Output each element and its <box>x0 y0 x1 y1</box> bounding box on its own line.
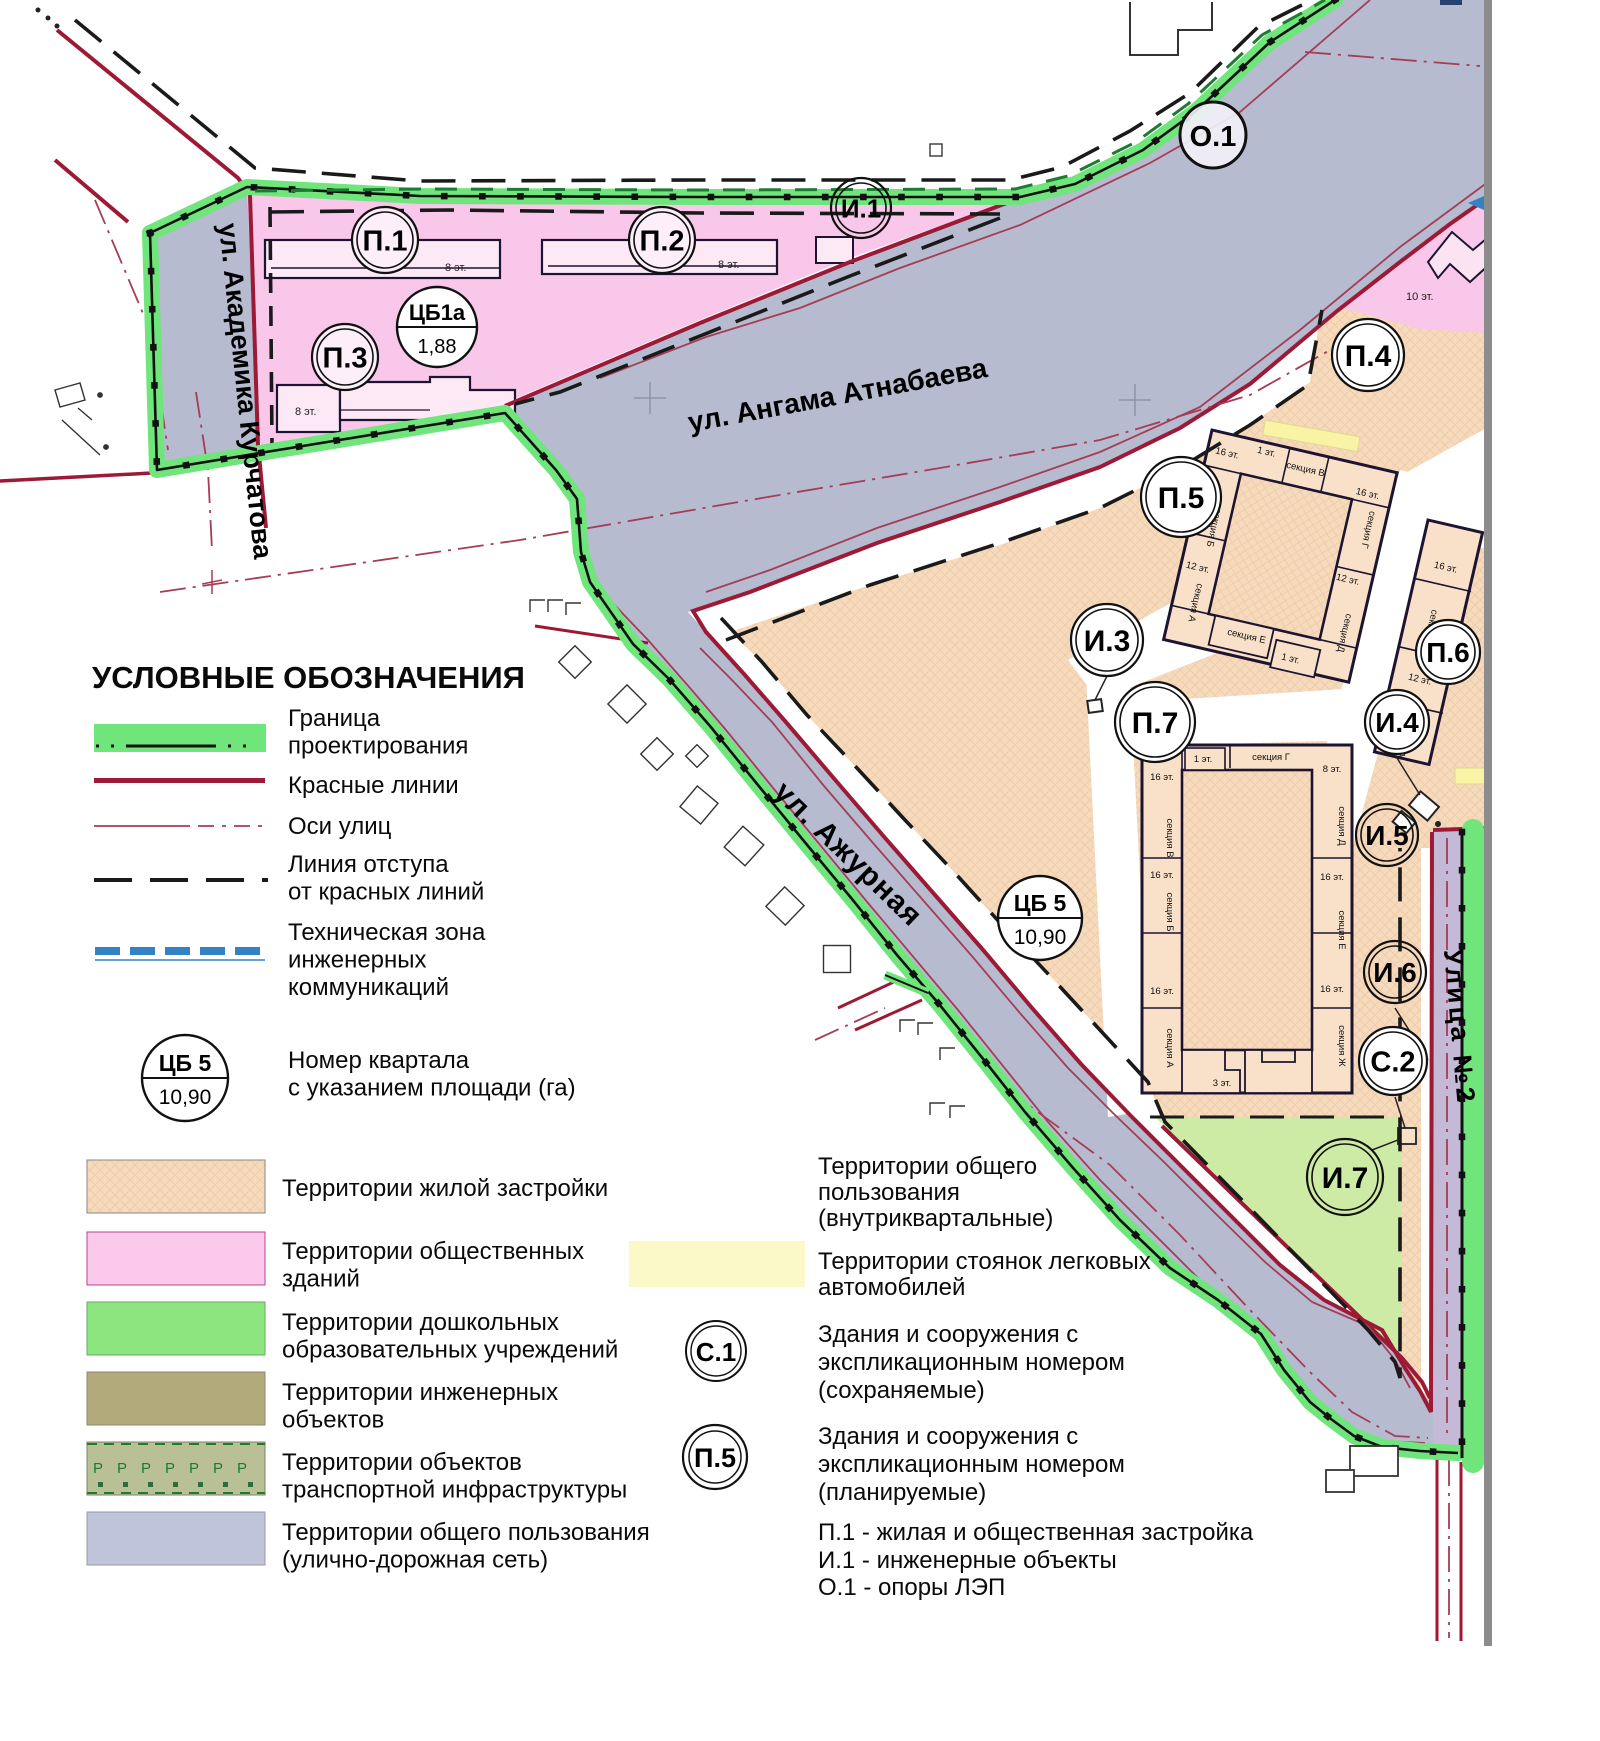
svg-text:И.7: И.7 <box>1322 1162 1369 1195</box>
svg-text:Территории инженерных: Территории инженерных <box>282 1379 558 1406</box>
svg-text:Здания и сооружения с: Здания и сооружения с <box>818 1423 1078 1450</box>
svg-text:инженерных: инженерных <box>288 947 427 974</box>
svg-text:О.1: О.1 <box>1190 121 1237 153</box>
svg-text:(улично-дорожная сеть): (улично-дорожная сеть) <box>282 1547 548 1574</box>
svg-text:С.1: С.1 <box>696 1337 736 1367</box>
svg-text:Территории объектов: Территории объектов <box>282 1449 522 1476</box>
svg-text:16 эт.: 16 эт. <box>1150 772 1174 783</box>
svg-text:зданий: зданий <box>282 1266 360 1293</box>
svg-text:Территории жилой застройки: Территории жилой застройки <box>282 1175 608 1202</box>
svg-text:16 эт.: 16 эт. <box>1150 986 1174 997</box>
svg-text:секция Г: секция Г <box>1252 752 1290 763</box>
svg-text:объектов: объектов <box>282 1407 384 1434</box>
svg-text:8 эт.: 8 эт. <box>295 406 316 418</box>
svg-text:транспортной инфраструктуры: транспортной инфраструктуры <box>282 1477 627 1504</box>
svg-text:3 эт.: 3 эт. <box>1213 1078 1232 1089</box>
svg-text:8 эт.: 8 эт. <box>445 262 466 274</box>
svg-text:УСЛОВНЫЕ ОБОЗНАЧЕНИЯ: УСЛОВНЫЕ ОБОЗНАЧЕНИЯ <box>92 660 525 695</box>
svg-text:П.6: П.6 <box>1426 637 1469 668</box>
svg-text:П.2: П.2 <box>639 225 684 257</box>
svg-text:С.2: С.2 <box>1370 1046 1415 1078</box>
svg-text:П.5: П.5 <box>1158 482 1205 515</box>
svg-text:1 эт.: 1 эт. <box>1194 754 1213 765</box>
svg-text:П.5: П.5 <box>694 1443 736 1473</box>
svg-text:П.1: П.1 <box>362 225 407 257</box>
svg-text:Техническая зона: Техническая зона <box>288 919 486 946</box>
svg-text:8 эт.: 8 эт. <box>1323 764 1342 775</box>
svg-text:экспликационным номером: экспликационным номером <box>818 1451 1125 1478</box>
svg-text:О.1 - опоры ЛЭП: О.1 - опоры ЛЭП <box>818 1574 1005 1601</box>
svg-text:ЦБ1а: ЦБ1а <box>409 300 466 325</box>
svg-text:Граница: Граница <box>288 705 381 732</box>
svg-text:1,88: 1,88 <box>418 336 457 358</box>
svg-text:16 эт.: 16 эт. <box>1320 872 1344 883</box>
svg-text:И.3: И.3 <box>1084 625 1131 658</box>
svg-text:И.1 - инженерные объекты: И.1 - инженерные объекты <box>818 1547 1117 1574</box>
svg-text:10 эт.: 10 эт. <box>1406 291 1434 303</box>
svg-text:Территории общего пользования: Территории общего пользования <box>282 1519 650 1546</box>
svg-text:секция Ж: секция Ж <box>1336 1025 1347 1067</box>
svg-text:коммуникаций: коммуникаций <box>288 974 449 1001</box>
svg-text:секция В: секция В <box>1164 818 1175 857</box>
svg-text:секция Б: секция Б <box>1164 893 1175 932</box>
svg-text:Линия отступа: Линия отступа <box>288 851 449 878</box>
svg-text:Территории дошкольных: Территории дошкольных <box>282 1309 559 1336</box>
svg-text:(внутриквартальные): (внутриквартальные) <box>818 1205 1053 1232</box>
svg-text:от красных линий: от красных линий <box>288 879 484 906</box>
svg-text:П.3: П.3 <box>322 342 367 374</box>
svg-text:Оси улиц: Оси улиц <box>288 813 392 840</box>
svg-text:И.1: И.1 <box>841 193 881 223</box>
svg-text:РРРРРРР: РРРРРРР <box>93 1460 261 1477</box>
svg-text:с указанием площади (га): с указанием площади (га) <box>288 1075 576 1102</box>
svg-text:секция А: секция А <box>1164 1028 1175 1068</box>
svg-text:Территории общественных: Территории общественных <box>282 1238 584 1265</box>
svg-text:Территории общего: Территории общего <box>818 1153 1037 1180</box>
svg-text:И.6: И.6 <box>1373 957 1416 988</box>
svg-text:10,90: 10,90 <box>1014 926 1067 949</box>
svg-text:секция Е: секция Е <box>1336 910 1347 949</box>
svg-text:16 эт.: 16 эт. <box>1150 870 1174 881</box>
svg-text:автомобилей: автомобилей <box>818 1274 965 1301</box>
svg-text:10,90: 10,90 <box>159 1086 212 1109</box>
svg-text:(планируемые): (планируемые) <box>818 1479 986 1506</box>
svg-text:проектирования: проектирования <box>288 733 468 760</box>
svg-text:8 эт.: 8 эт. <box>718 259 739 271</box>
svg-text:секция Д: секция Д <box>1336 806 1347 846</box>
svg-text:16 эт.: 16 эт. <box>1320 984 1344 995</box>
svg-text:Здания и сооружения с: Здания и сооружения с <box>818 1321 1078 1348</box>
svg-text:П.4: П.4 <box>1345 340 1392 373</box>
svg-text:П.1 - жилая и общественная зас: П.1 - жилая и общественная застройка <box>818 1519 1254 1546</box>
svg-text:П.7: П.7 <box>1132 707 1179 740</box>
svg-text:И.5: И.5 <box>1365 820 1408 851</box>
svg-text:ЦБ 5: ЦБ 5 <box>159 1050 212 1076</box>
svg-text:Территории стоянок легковых: Территории стоянок легковых <box>818 1248 1151 1275</box>
svg-text:(сохраняемые): (сохраняемые) <box>818 1377 985 1404</box>
svg-text:экспликационным номером: экспликационным номером <box>818 1349 1125 1376</box>
svg-text:образовательных учреждений: образовательных учреждений <box>282 1337 618 1364</box>
svg-text:пользования: пользования <box>818 1179 960 1206</box>
svg-text:И.4: И.4 <box>1375 707 1419 738</box>
svg-text:Красные линии: Красные линии <box>288 772 459 799</box>
svg-text:Номер квартала: Номер квартала <box>288 1047 470 1074</box>
svg-text:ЦБ 5: ЦБ 5 <box>1014 890 1067 916</box>
